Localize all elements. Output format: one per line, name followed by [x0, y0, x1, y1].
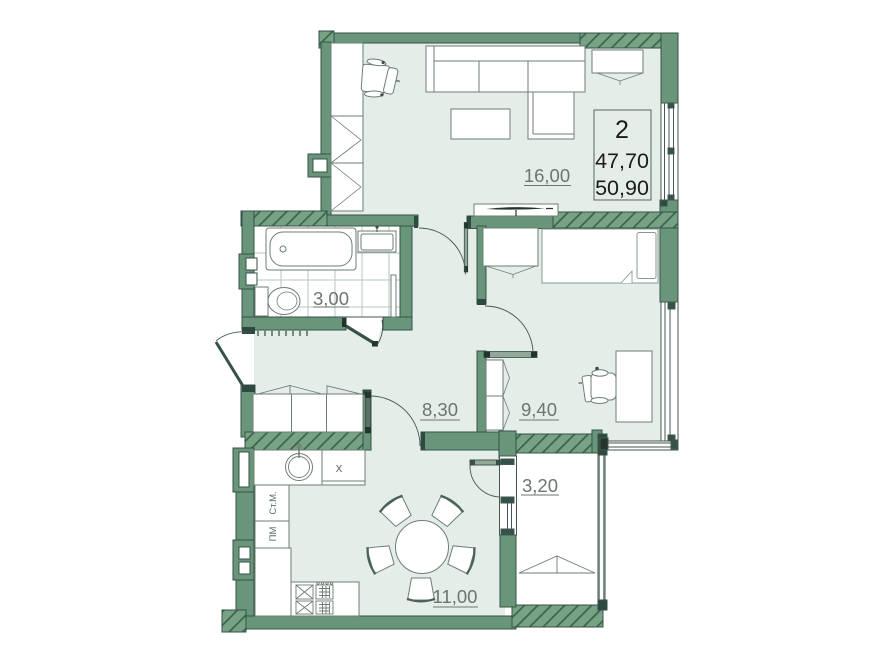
svg-text:3,20: 3,20 [522, 475, 558, 496]
svg-text:47,70: 47,70 [595, 149, 649, 173]
svg-text:9,40: 9,40 [521, 399, 557, 420]
svg-text:50,90: 50,90 [595, 176, 649, 200]
svg-text:ПМ: ПМ [268, 527, 279, 542]
svg-text:2: 2 [615, 116, 629, 144]
svg-text:x: x [336, 460, 343, 475]
svg-text:11,00: 11,00 [433, 586, 478, 607]
svg-text:16,00: 16,00 [524, 165, 570, 186]
svg-text:3,00: 3,00 [313, 288, 349, 309]
svg-text:8,30: 8,30 [422, 399, 458, 420]
svg-text:Ст.М.: Ст.М. [268, 491, 279, 514]
